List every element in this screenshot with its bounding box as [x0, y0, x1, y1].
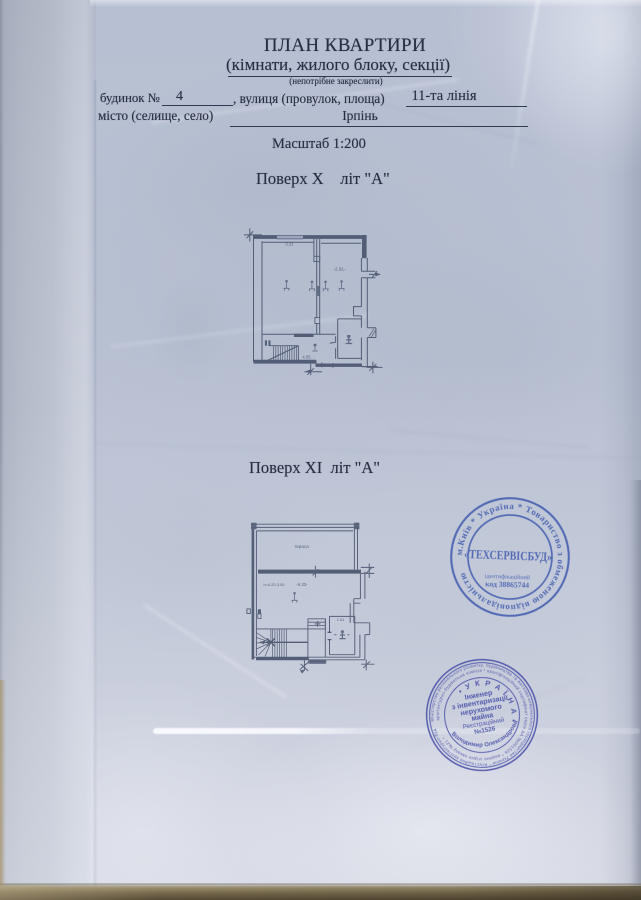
svg-text:«ТЕХСЕРВІСБУД»: «ТЕХСЕРВІСБУД» [464, 547, 552, 564]
svg-text:1.61: 1.61 [337, 618, 344, 622]
svg-text:тераса: тераса [294, 544, 309, 549]
svg-text:-6.33-: -6.33- [296, 582, 308, 587]
svg-text:3.31: 3.31 [285, 242, 294, 247]
svg-text:4.05: 4.05 [302, 354, 311, 359]
svg-text:h=4.20-3.00: h=4.20-3.00 [264, 582, 286, 587]
svg-text:код 38865744: код 38865744 [485, 579, 529, 590]
svg-text:-2.91-: -2.91- [333, 267, 345, 272]
